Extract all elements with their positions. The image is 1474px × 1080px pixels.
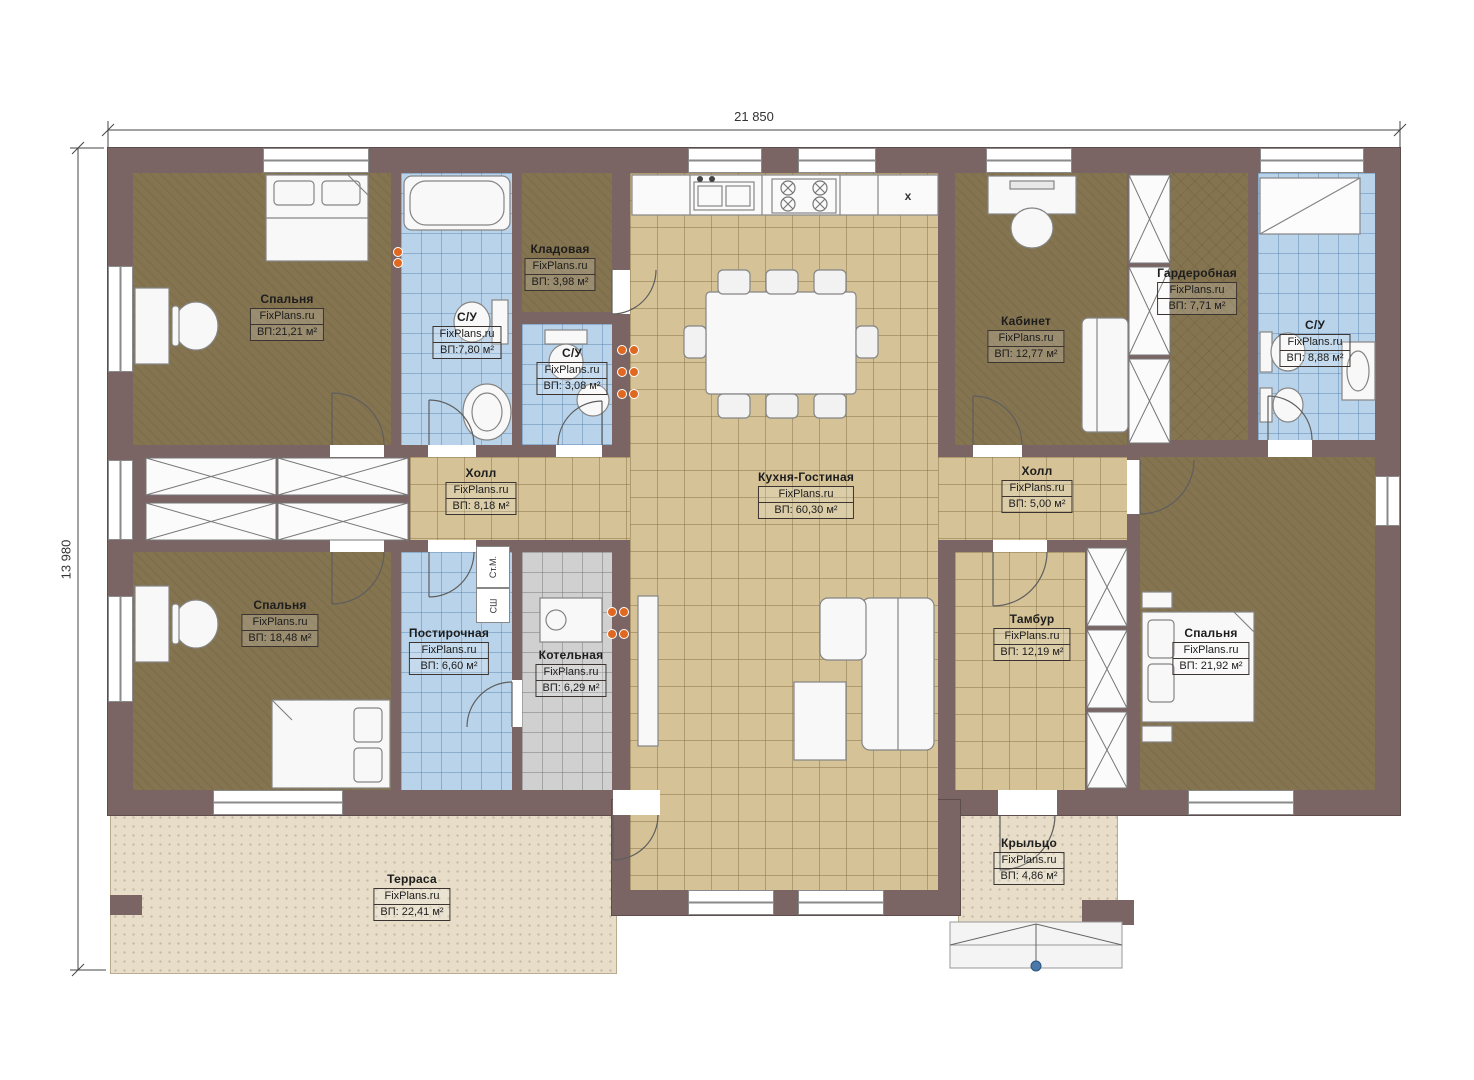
room-title: Холл (445, 466, 516, 480)
furniture-layer (0, 0, 1474, 1080)
room-label-wc-tr: С/У FixPlans.ru ВП: 8,88 м² (1279, 318, 1350, 367)
room-title: Кухня-Гостиная (758, 470, 854, 484)
room-title: Постирочная (409, 626, 489, 640)
room-title: С/У (432, 310, 501, 324)
room-area: ВП: 60,30 м² (758, 502, 854, 519)
floor-plan: 21 850 13 980 Ст.М. СШ x Спальня FixPlan… (0, 0, 1474, 1080)
room-area: ВП: 22,41 м² (373, 904, 450, 921)
room-area: ВП: 4,86 м² (993, 868, 1064, 885)
washer-tag: Ст.М. (476, 546, 510, 588)
room-area: ВП: 18,48 м² (241, 630, 318, 647)
room-title: Тамбур (993, 612, 1070, 626)
dimension-width-label: 21 850 (734, 109, 774, 124)
room-area: ВП: 21,92 м² (1172, 658, 1249, 675)
room-title: С/У (536, 346, 607, 360)
brand-watermark: FixPlans.ru (241, 614, 318, 631)
room-area: ВП: 5,00 м² (1001, 496, 1072, 513)
brand-watermark: FixPlans.ru (373, 888, 450, 905)
room-label-hall-right: Холл FixPlans.ru ВП: 5,00 м² (1001, 464, 1072, 513)
room-label-terrace: Терраса FixPlans.ru ВП: 22,41 м² (373, 872, 450, 921)
room-title: Кабинет (987, 314, 1064, 328)
brand-watermark: FixPlans.ru (535, 664, 606, 681)
room-label-laundry: Постирочная FixPlans.ru ВП: 6,60 м² (409, 626, 489, 675)
brand-watermark: FixPlans.ru (524, 258, 595, 275)
washer-tag-label: Ст.М. (488, 556, 498, 578)
room-title: Котельная (535, 648, 606, 662)
room-title: Холл (1001, 464, 1072, 478)
room-area: ВП:7,80 м² (432, 342, 501, 359)
room-area: ВП: 7,71 м² (1157, 298, 1237, 315)
room-label-office: Кабинет FixPlans.ru ВП: 12,77 м² (987, 314, 1064, 363)
room-area: ВП: 3,98 м² (524, 274, 595, 291)
brand-watermark: FixPlans.ru (1279, 334, 1350, 351)
brand-watermark: FixPlans.ru (432, 326, 501, 343)
room-area: ВП: 6,60 м² (409, 658, 489, 675)
fridge-tag: x (880, 178, 936, 214)
brand-watermark: FixPlans.ru (250, 308, 324, 325)
room-area: ВП: 6,29 м² (535, 680, 606, 697)
room-title: Крыльцо (993, 836, 1064, 850)
room-title: Спальня (1172, 626, 1249, 640)
room-title: Кладовая (524, 242, 595, 256)
room-area: ВП: 12,19 м² (993, 644, 1070, 661)
dryer-tag-label: СШ (488, 598, 498, 613)
room-title: Спальня (250, 292, 324, 306)
room-area: ВП: 8,88 м² (1279, 350, 1350, 367)
room-label-kitchen-living: Кухня-Гостиная FixPlans.ru ВП: 60,30 м² (758, 470, 854, 519)
room-area: ВП: 8,18 м² (445, 498, 516, 515)
room-label-storage: Кладовая FixPlans.ru ВП: 3,98 м² (524, 242, 595, 291)
brand-watermark: FixPlans.ru (1157, 282, 1237, 299)
brand-watermark: FixPlans.ru (993, 852, 1064, 869)
room-label-wardrobe: Гардеробная FixPlans.ru ВП: 7,71 м² (1157, 266, 1237, 315)
brand-watermark: FixPlans.ru (409, 642, 489, 659)
room-label-bedroom-r: Спальня FixPlans.ru ВП: 21,92 м² (1172, 626, 1249, 675)
room-label-hall-left: Холл FixPlans.ru ВП: 8,18 м² (445, 466, 516, 515)
room-label-boiler: Котельная FixPlans.ru ВП: 6,29 м² (535, 648, 606, 697)
brand-watermark: FixPlans.ru (987, 330, 1064, 347)
brand-watermark: FixPlans.ru (1001, 480, 1072, 497)
room-area: ВП: 3,08 м² (536, 378, 607, 395)
room-title: С/У (1279, 318, 1350, 332)
brand-watermark: FixPlans.ru (536, 362, 607, 379)
room-label-vestibule: Тамбур FixPlans.ru ВП: 12,19 м² (993, 612, 1070, 661)
room-area: ВП:21,21 м² (250, 324, 324, 341)
dryer-tag: СШ (476, 588, 510, 623)
room-title: Спальня (241, 598, 318, 612)
room-label-porch: Крыльцо FixPlans.ru ВП: 4,86 м² (993, 836, 1064, 885)
room-label-wc-left: С/У FixPlans.ru ВП:7,80 м² (432, 310, 501, 359)
porch-steps (950, 922, 1122, 971)
dimension-height-label: 13 980 (59, 530, 74, 590)
brand-watermark: FixPlans.ru (758, 486, 854, 503)
room-label-bedroom-bl: Спальня FixPlans.ru ВП: 18,48 м² (241, 598, 318, 647)
room-title: Терраса (373, 872, 450, 886)
room-title: Гардеробная (1157, 266, 1237, 280)
brand-watermark: FixPlans.ru (993, 628, 1070, 645)
brand-watermark: FixPlans.ru (1172, 642, 1249, 659)
room-label-bedroom-tl: Спальня FixPlans.ru ВП:21,21 м² (250, 292, 324, 341)
room-area: ВП: 12,77 м² (987, 346, 1064, 363)
brand-watermark: FixPlans.ru (445, 482, 516, 499)
room-label-wc-small: С/У FixPlans.ru ВП: 3,08 м² (536, 346, 607, 395)
